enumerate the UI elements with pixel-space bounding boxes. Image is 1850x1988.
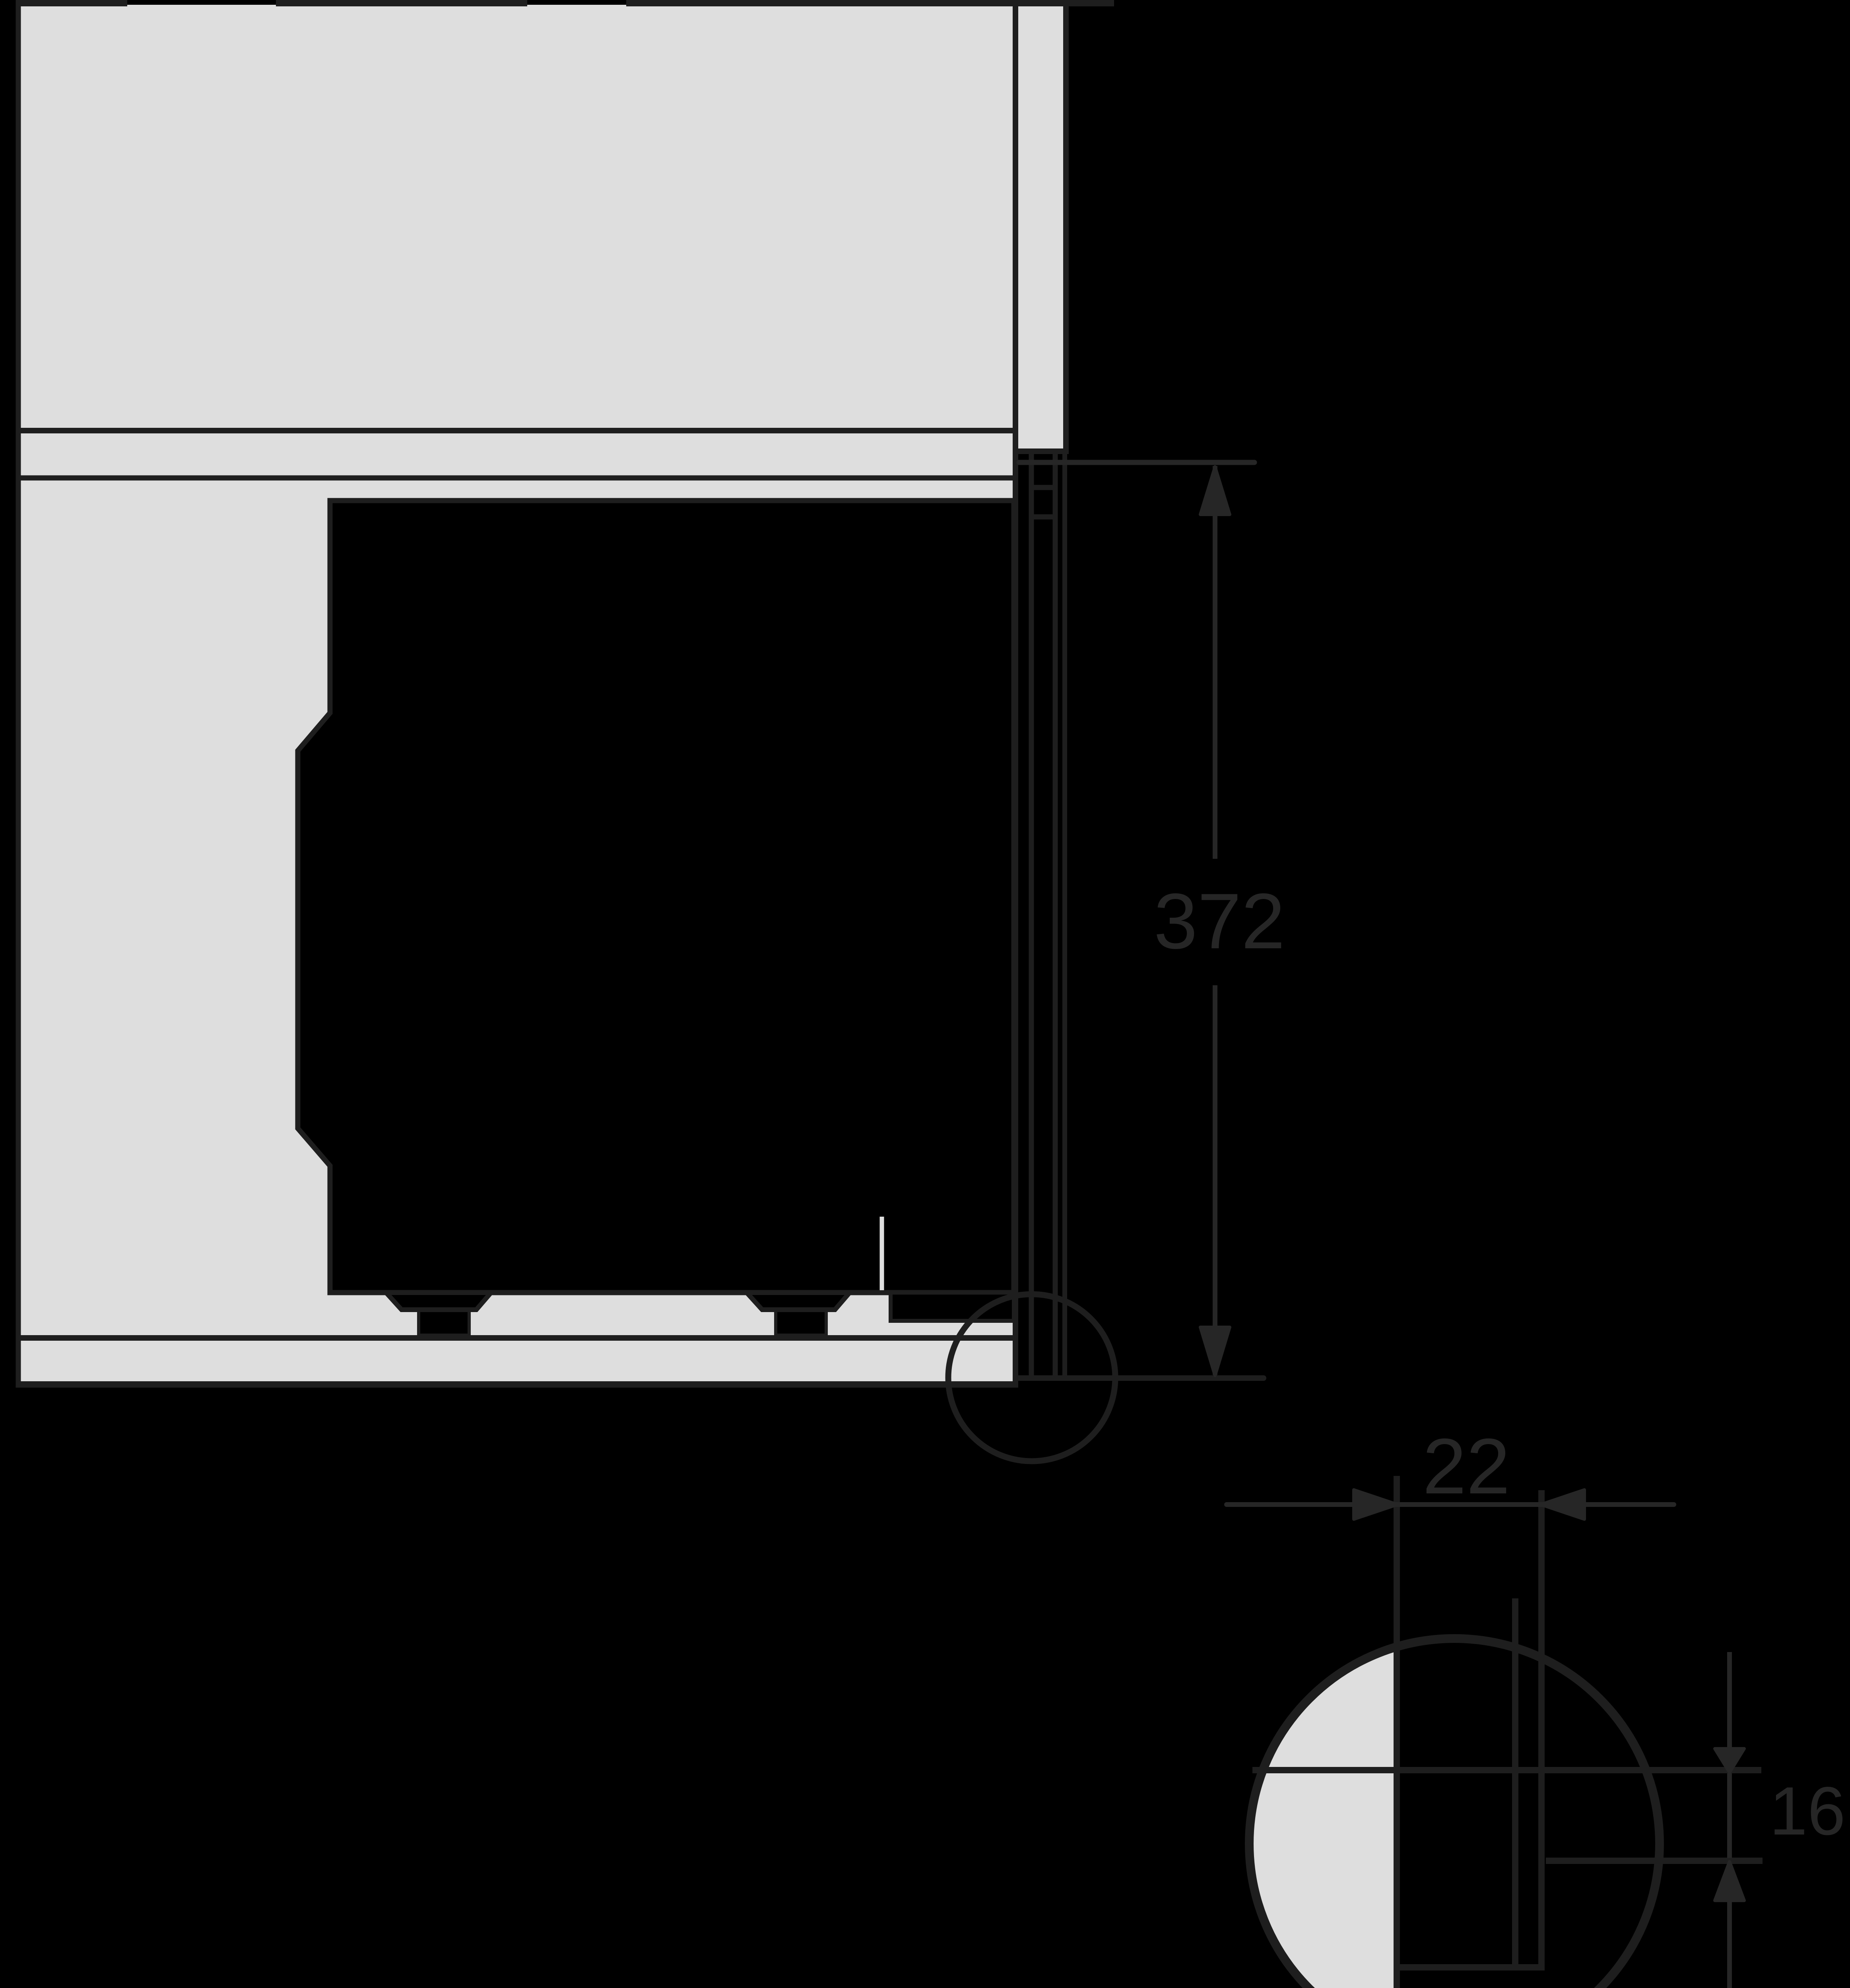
appliance-door-bottom-edge <box>891 1293 1014 1321</box>
appliance-foot <box>419 1310 469 1335</box>
appliance <box>298 501 1014 1335</box>
niche-height-value: 372 <box>1154 877 1285 965</box>
upper-front-panel <box>1018 5 1063 451</box>
bottom-clearance-value: 16 <box>1769 1773 1845 1849</box>
installation-diagram: 372 22 16 <box>0 0 1850 1988</box>
appliance-base-bar <box>386 1293 491 1310</box>
appliance-body-silhouette <box>298 501 1014 1293</box>
panel-thickness-value: 22 <box>1423 1422 1510 1510</box>
appliance-base-bar <box>747 1293 850 1310</box>
appliance-foot <box>776 1310 826 1335</box>
